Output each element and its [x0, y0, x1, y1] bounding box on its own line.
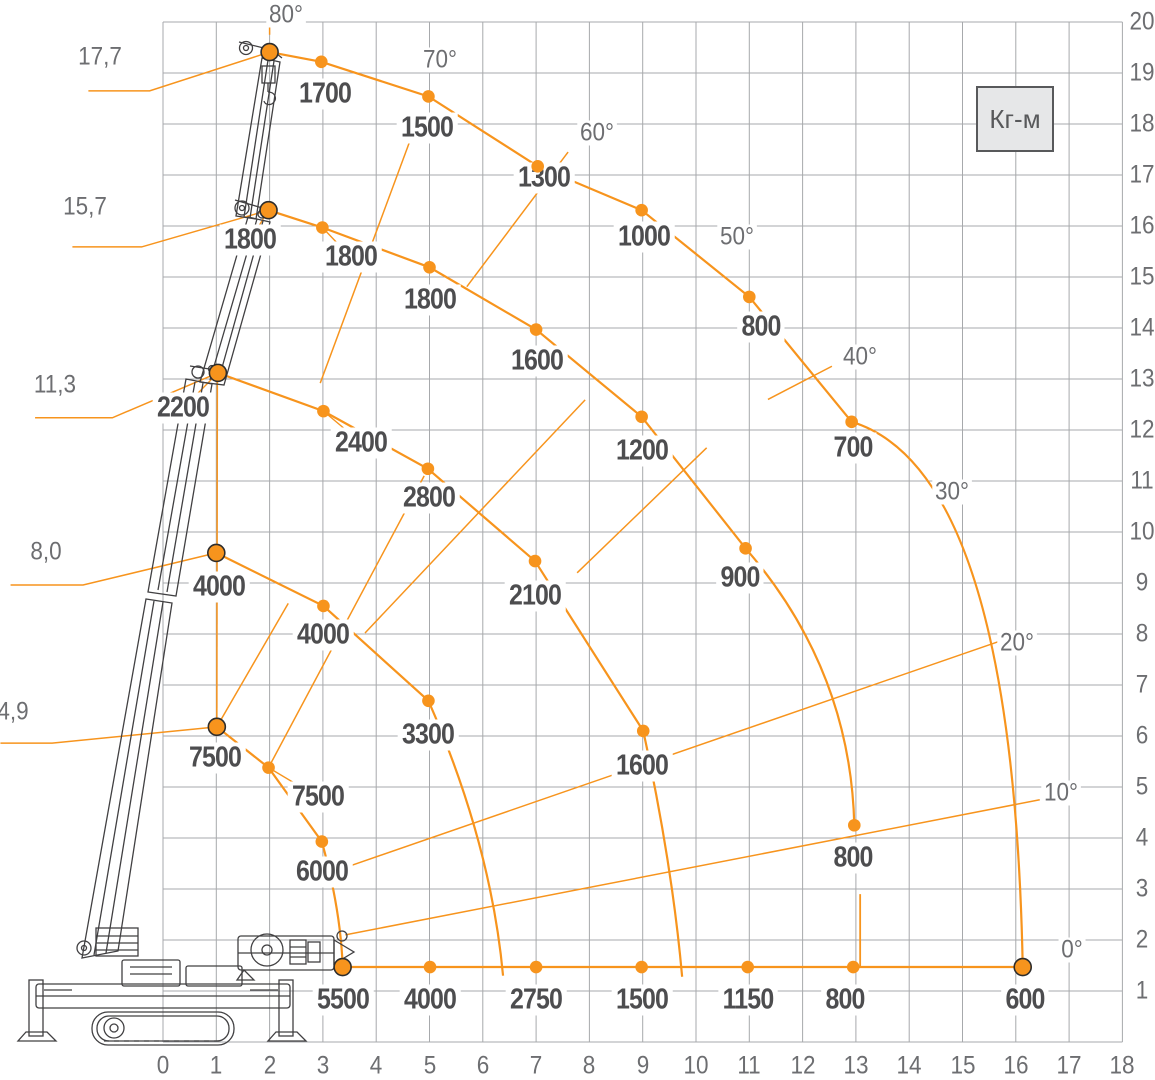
data-point [208, 544, 225, 561]
data-points-layer [0, 0, 1155, 1080]
data-point [208, 718, 225, 735]
data-point [316, 221, 329, 234]
data-point [262, 761, 275, 774]
data-point [743, 291, 756, 304]
data-point [1014, 959, 1031, 976]
data-point [422, 90, 435, 103]
data-point [741, 961, 754, 974]
data-point [423, 261, 436, 274]
data-point [316, 835, 329, 848]
data-point [848, 819, 861, 832]
load-chart-root: 1700150013001000800700180018001800160012… [0, 0, 1155, 1080]
data-point [847, 961, 860, 974]
data-point [739, 542, 752, 555]
data-point [530, 961, 543, 974]
data-point [531, 160, 544, 173]
data-point [315, 55, 328, 68]
data-point [422, 695, 435, 708]
data-point [260, 202, 277, 219]
data-point [209, 364, 226, 381]
data-point [334, 959, 351, 976]
data-point [635, 410, 648, 423]
data-point [635, 204, 648, 217]
data-point [635, 961, 648, 974]
data-point [317, 405, 330, 418]
data-point [529, 555, 542, 568]
data-point [424, 961, 437, 974]
data-point [317, 600, 330, 613]
data-point [261, 44, 278, 61]
data-point [845, 416, 858, 429]
data-point [530, 323, 543, 336]
data-point [422, 462, 435, 475]
data-point [637, 725, 650, 738]
